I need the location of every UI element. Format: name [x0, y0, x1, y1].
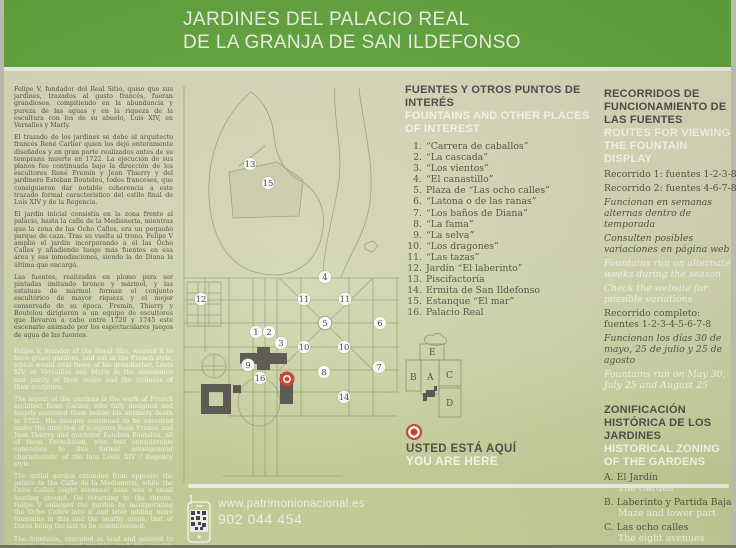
list-item-label: “Los dragones” — [426, 241, 499, 252]
list-item: 9.“La selva” — [405, 230, 597, 241]
list-item-label: Palacio Real — [426, 307, 484, 318]
intro-spanish: Felipe V, fundador del Real Sitio, quiso… — [14, 86, 173, 339]
map-marker-11: 11 — [298, 293, 311, 306]
svg-text:10: 10 — [299, 343, 310, 353]
list-item-number: 13. — [405, 274, 422, 285]
route-line: Check the website for possible variation… — [604, 283, 736, 305]
palace-buildings — [201, 347, 293, 414]
list-item-number: 10. — [405, 241, 422, 252]
map-marker-11: 11 — [339, 293, 352, 306]
route-line: Funcionan los días 30 de mayo, 25 de jul… — [604, 333, 736, 366]
footer-divider — [188, 484, 729, 488]
list-item: 16.Palacio Real — [405, 307, 597, 318]
list-item-label: “La selva” — [426, 230, 474, 241]
fountains-section: FUENTES Y OTROS PUNTOS DE INTERÉS FOUNTA… — [405, 84, 597, 319]
svg-text:15: 15 — [263, 179, 274, 189]
list-item-label: Plaza de “Las ocho calles” — [426, 185, 550, 196]
fountains-title-en: FOUNTAINS AND OTHER PLACES OF INTEREST — [405, 110, 597, 136]
list-item-number: 3. — [405, 163, 422, 174]
route-line: Consulten posibles variaciones en página… — [604, 233, 736, 255]
list-item: 2.“La cascada” — [405, 152, 597, 163]
map-marker-12: 12 — [195, 293, 208, 306]
minimap-palace-icon — [423, 386, 437, 401]
svg-text:8: 8 — [321, 368, 326, 378]
list-item-label: Estanque “El mar” — [426, 296, 514, 307]
list-item-number: 14. — [405, 285, 422, 296]
zone-item: C. Las ocho calles — [604, 522, 736, 533]
phone-number-text: 902 044 454 — [218, 511, 302, 527]
map-marker-9: 9 — [242, 359, 255, 372]
svg-text:3: 3 — [278, 339, 283, 349]
zoning-title-en: HISTORICAL ZONING OF THE GARDENS — [604, 443, 736, 469]
zone-item: A. El Jardín — [604, 472, 736, 483]
header-band: JARDINES DEL PALACIO REAL DE LA GRANJA D… — [4, 0, 731, 71]
list-item-number: 15. — [405, 296, 422, 307]
svg-text:12: 12 — [196, 295, 207, 305]
list-item-label: “La fama” — [426, 219, 474, 230]
route-line: Recorrido 2: fuentes 4-6-7-8 — [604, 183, 736, 194]
list-item-label: “La cascada” — [426, 152, 488, 163]
list-item-number: 7. — [405, 208, 422, 219]
map-paths — [184, 86, 399, 483]
svg-text:5: 5 — [322, 319, 327, 329]
list-item: 4.“El canastillo” — [405, 174, 597, 185]
you-are-here-legend: USTED ESTÁ AQUÍ YOU ARE HERE — [406, 424, 516, 468]
information-sign: JARDINES DEL PALACIO REAL DE LA GRANJA D… — [4, 0, 731, 545]
svg-text:11: 11 — [299, 295, 310, 305]
list-item-label: Ermita de San Ildefonso — [426, 285, 540, 296]
list-item-label: “Carrera de caballos” — [426, 141, 528, 152]
route-line: Funcionan en semanas alternas dentro de … — [604, 197, 736, 230]
map-marker-6: 6 — [374, 317, 387, 330]
list-item-number: 9. — [405, 230, 422, 241]
list-item: 13.Piscifactoría — [405, 274, 597, 285]
list-item: 7.“Los baños de Diana” — [405, 208, 597, 219]
minimap-letters: EBACD — [410, 348, 453, 409]
svg-text:14: 14 — [339, 393, 350, 403]
svg-text:10: 10 — [339, 343, 350, 353]
list-item-number: 8. — [405, 219, 422, 230]
svg-text:4: 4 — [322, 273, 327, 283]
list-item-label: “El canastillo” — [426, 174, 494, 185]
svg-text:7: 7 — [376, 363, 381, 373]
intro-english: Felipe V, founder of the Royal Site, wan… — [14, 348, 173, 548]
list-item: 15.Estanque “El mar” — [405, 296, 597, 307]
list-item-label: “Latona o de las ranas” — [426, 196, 537, 207]
zone-item-translation: Maze and lower part — [618, 508, 736, 519]
sign-photo: JARDINES DEL PALACIO REAL DE LA GRANJA D… — [0, 0, 736, 548]
you-are-here-icon — [406, 424, 422, 440]
zoning-minimap: EBACD — [403, 330, 478, 430]
intro-paragraph-es: El trazado de los jardines se debe al ar… — [14, 134, 173, 206]
zone-item: B. Laberinto y Partida Baja — [604, 497, 736, 508]
map-marker-10: 10 — [338, 341, 351, 354]
map-marker-4: 4 — [319, 271, 332, 284]
intro-paragraph-es: Felipe V, fundador del Real Sitio, quiso… — [14, 86, 173, 129]
map-marker-8: 8 — [318, 366, 331, 379]
you-are-here-label-en: YOU ARE HERE — [406, 456, 516, 468]
intro-paragraph-en: Felipe V, founder of the Royal Site, wan… — [14, 348, 173, 391]
fountain-list: 1.“Carrera de caballos”2.“La cascada”3.“… — [405, 141, 597, 319]
pond-el-mar — [229, 162, 303, 218]
phone-qr-icon — [184, 494, 214, 546]
routes-title-en: ROUTES FOR VIEWING THE FOUNTAIN DISPLAY — [604, 127, 736, 166]
routes-title-es: RECORRIDOS DE FUNCIONAMIENTO DE LAS FUEN… — [604, 88, 736, 127]
svg-text:6: 6 — [377, 319, 382, 329]
map-marker-3: 3 — [275, 337, 288, 350]
svg-text:2: 2 — [266, 328, 271, 338]
website-text: www.patrimonionacional.es — [218, 498, 365, 510]
map-marker-10: 10 — [298, 341, 311, 354]
svg-text:11: 11 — [340, 295, 351, 305]
zoning-title-es: ZONIFICACIÓN HISTÓRICA DE LOS JARDINES — [604, 404, 736, 443]
list-item-label: Piscifactoría — [426, 274, 485, 285]
list-item-label: “Los baños de Diana” — [426, 208, 528, 219]
map-marker-5: 5 — [319, 317, 332, 330]
intro-paragraph-es: Las fuentes, realizadas en plomo para se… — [14, 274, 173, 339]
list-item-number: 11. — [405, 252, 422, 263]
routes-lines: Recorrido 1: fuentes 1-2-3-8Recorrido 2:… — [604, 169, 736, 391]
intro-paragraph-en: The layout of the gardens is the work of… — [14, 396, 173, 468]
route-line: Fountains run on alternate weeks during … — [604, 258, 736, 280]
list-item: 3.“Los vientos” — [405, 163, 597, 174]
routes-section: RECORRIDOS DE FUNCIONAMIENTO DE LAS FUEN… — [604, 88, 736, 548]
list-item: 11.“Las tazas” — [405, 252, 597, 263]
list-item-number: 4. — [405, 174, 422, 185]
map-marker-2: 2 — [263, 326, 276, 339]
map-marker-16: 16 — [254, 372, 267, 385]
route-line: Recorrido 1: fuentes 1-2-3-8 — [604, 169, 736, 180]
page-title-line1: JARDINES DEL PALACIO REAL — [183, 8, 521, 31]
list-item-number: 2. — [405, 152, 422, 163]
route-line: Recorrido completo: fuentes 1-2-3-4-5-6-… — [604, 308, 736, 330]
page-title: JARDINES DEL PALACIO REAL DE LA GRANJA D… — [183, 8, 521, 54]
list-item: 6.“Latona o de las ranas” — [405, 196, 597, 207]
list-item-label: “Las tazas” — [426, 252, 479, 263]
you-are-here-label-es: USTED ESTÁ AQUÍ — [406, 443, 516, 455]
svg-text:16: 16 — [255, 374, 266, 384]
intro-paragraph-en: The initial garden extended from opposit… — [14, 473, 173, 531]
garden-map: 123456789101011111213141516 — [183, 86, 401, 483]
minimap-zone-letter-B: B — [410, 373, 417, 383]
list-item-number: 1. — [405, 141, 422, 152]
intro-paragraph-es: El jardín inicial consistía en la zona f… — [14, 211, 173, 269]
minimap-zone-letter-D: D — [446, 399, 453, 409]
minimap-zone-letter-A: A — [426, 373, 434, 383]
minimap-zone-letter-E: E — [429, 348, 436, 358]
route-line: Fountains run on May 30, July 25 and Aug… — [604, 369, 736, 391]
list-item-label: Jardín “El laberinto” — [426, 263, 523, 274]
map-marker-13: 13 — [244, 158, 257, 171]
list-item: 14.Ermita de San Ildefonso — [405, 285, 597, 296]
list-item-label: “Los vientos” — [426, 163, 489, 174]
zone-item-translation: The eight avenues — [618, 533, 736, 544]
list-item: 1.“Carrera de caballos” — [405, 141, 597, 152]
zoning-section: ZONIFICACIÓN HISTÓRICA DE LOS JARDINES H… — [604, 404, 736, 548]
minimap-zone-letter-C: C — [446, 371, 453, 381]
list-item: 10.“Los dragones” — [405, 241, 597, 252]
list-item: 12.Jardín “El laberinto” — [405, 263, 597, 274]
intro-text: Felipe V, fundador del Real Sitio, quiso… — [14, 86, 173, 548]
list-item-number: 6. — [405, 196, 422, 207]
svg-text:1: 1 — [253, 328, 258, 338]
svg-text:13: 13 — [245, 160, 256, 170]
page-title-line2: DE LA GRANJA DE SAN ILDEFONSO — [183, 31, 521, 54]
list-item: 8.“La fama” — [405, 219, 597, 230]
svg-text:9: 9 — [245, 361, 250, 371]
map-you-are-here-marker — [280, 372, 295, 387]
map-marker-7: 7 — [373, 361, 386, 374]
list-item-number: 5. — [405, 185, 422, 196]
list-item: 5.Plaza de “Las ocho calles” — [405, 185, 597, 196]
map-marker-15: 15 — [262, 177, 275, 190]
fountains-title-es: FUENTES Y OTROS PUNTOS DE INTERÉS — [405, 84, 597, 110]
list-item-number: 16. — [405, 307, 422, 318]
cloud-outline — [425, 333, 447, 345]
map-marker-14: 14 — [338, 391, 351, 404]
list-item-number: 12. — [405, 263, 422, 274]
map-marker-1: 1 — [250, 326, 263, 339]
